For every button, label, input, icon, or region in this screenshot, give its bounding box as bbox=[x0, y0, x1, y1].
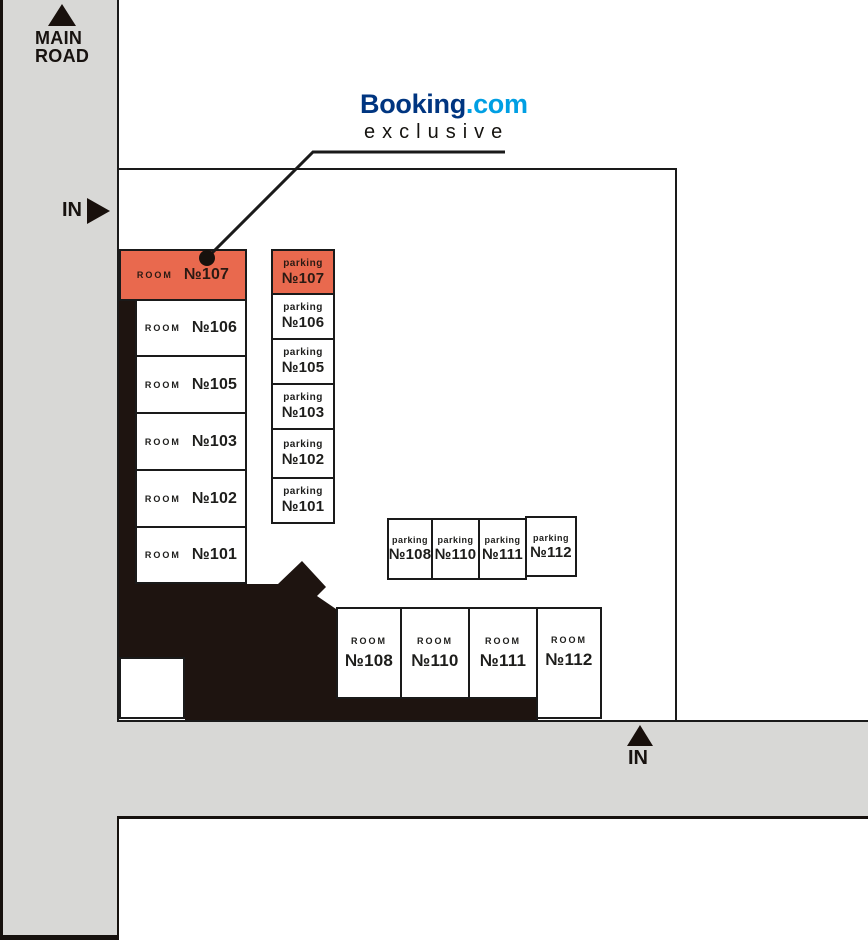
parking-number: №112 bbox=[530, 544, 572, 561]
booking-logo: Booking.com bbox=[360, 89, 528, 120]
room-type-label: ROOM bbox=[145, 437, 181, 447]
entrance-left-label: IN bbox=[62, 199, 82, 222]
booking-exclusive-tagline: exclusive bbox=[364, 121, 509, 144]
parking-number: №108 bbox=[389, 546, 432, 563]
room-112: ROOM №112 bbox=[536, 607, 602, 719]
parking-106: parking №106 bbox=[271, 293, 335, 340]
room-type-label: ROOM bbox=[485, 636, 521, 646]
parking-107: parking №107 bbox=[271, 249, 335, 295]
room-type-label: ROOM bbox=[145, 494, 181, 504]
room-type-label: ROOM bbox=[551, 635, 587, 645]
room-number: №110 bbox=[411, 651, 458, 671]
main-road-line1: MAIN bbox=[35, 29, 89, 47]
parking-112: parking №112 bbox=[525, 516, 577, 577]
room-type-label: ROOM bbox=[145, 550, 181, 560]
room-number: №111 bbox=[480, 651, 526, 671]
room-number: №108 bbox=[345, 651, 393, 671]
main-road-strip bbox=[0, 0, 117, 940]
parking-type-label: parking bbox=[533, 533, 569, 543]
bottom-road-strip bbox=[117, 722, 868, 816]
parking-number: №111 bbox=[482, 546, 523, 563]
room-101: ROOM №101 bbox=[135, 526, 247, 584]
parking-110: parking №110 bbox=[431, 518, 480, 580]
parking-number: №105 bbox=[282, 359, 325, 376]
room-108: ROOM №108 bbox=[336, 607, 402, 699]
entrance-left-arrow-icon bbox=[87, 198, 110, 224]
room-number: №107 bbox=[184, 266, 229, 284]
room-number: №101 bbox=[192, 546, 237, 564]
parking-105: parking №105 bbox=[271, 338, 335, 385]
parking-type-label: parking bbox=[484, 535, 520, 545]
parking-102: parking №102 bbox=[271, 428, 335, 479]
main-road-line2: ROAD bbox=[35, 47, 89, 65]
room-type-label: ROOM bbox=[145, 323, 181, 333]
parking-type-label: parking bbox=[283, 439, 323, 450]
room-105: ROOM №105 bbox=[135, 355, 247, 414]
parking-type-label: parking bbox=[283, 258, 323, 269]
property-map: ROOM №107 ROOM №106 ROOM №105 ROOM №103 … bbox=[0, 0, 868, 940]
room-111: ROOM №111 bbox=[468, 607, 538, 699]
parking-number: №101 bbox=[282, 498, 325, 515]
room-type-label: ROOM bbox=[417, 636, 453, 646]
parking-type-label: parking bbox=[437, 535, 473, 545]
room-number: №112 bbox=[545, 650, 592, 670]
room-number: №106 bbox=[192, 319, 237, 337]
parking-type-label: parking bbox=[283, 392, 323, 403]
parking-type-label: parking bbox=[283, 486, 323, 497]
room-number: №102 bbox=[192, 490, 237, 508]
room-103: ROOM №103 bbox=[135, 412, 247, 471]
room-106: ROOM №106 bbox=[135, 299, 247, 357]
boundary-extension-line bbox=[675, 720, 868, 722]
room-number: №103 bbox=[192, 433, 237, 451]
room-type-label: ROOM bbox=[145, 380, 181, 390]
main-road-label: MAIN ROAD bbox=[35, 29, 89, 65]
parking-111: parking №111 bbox=[478, 518, 527, 580]
booking-logo-suffix: .com bbox=[466, 89, 528, 119]
parking-number: №102 bbox=[282, 451, 325, 468]
adjacent-block bbox=[117, 816, 868, 940]
parking-101: parking №101 bbox=[271, 477, 335, 524]
parking-type-label: parking bbox=[283, 302, 323, 313]
parking-number: №107 bbox=[282, 270, 325, 287]
entrance-bottom-arrow-icon bbox=[627, 725, 653, 746]
parking-number: №103 bbox=[282, 404, 325, 421]
parking-number: №110 bbox=[435, 546, 477, 563]
room-107: ROOM №107 bbox=[119, 249, 247, 301]
parking-type-label: parking bbox=[392, 535, 428, 545]
main-road-up-arrow-icon bbox=[48, 4, 76, 26]
booking-logo-primary: Booking bbox=[360, 89, 466, 119]
room-102: ROOM №102 bbox=[135, 469, 247, 528]
parking-108: parking №108 bbox=[387, 518, 433, 580]
parking-type-label: parking bbox=[283, 347, 323, 358]
room-110: ROOM №110 bbox=[400, 607, 470, 699]
room-number: №105 bbox=[192, 376, 237, 394]
parking-103: parking №103 bbox=[271, 383, 335, 430]
parking-number: №106 bbox=[282, 314, 325, 331]
room-type-label: ROOM bbox=[137, 270, 173, 280]
entrance-bottom-label: IN bbox=[628, 747, 648, 770]
room-type-label: ROOM bbox=[351, 636, 387, 646]
